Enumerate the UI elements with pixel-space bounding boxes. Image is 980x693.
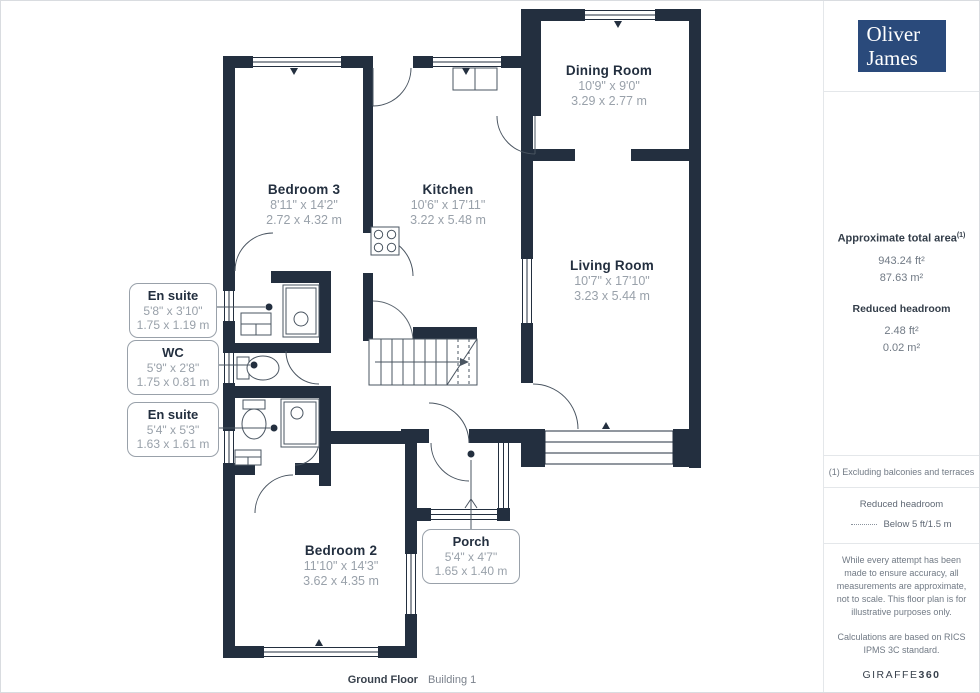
callout-dim-imperial: 5'8" x 3'10"	[134, 304, 212, 318]
callout-name: Porch	[427, 534, 515, 550]
shower-fixture-ensuite2	[281, 399, 319, 447]
callout-name: En suite	[134, 288, 212, 304]
footnote-marker: (1)	[957, 232, 966, 239]
callout-dim-imperial: 5'4" x 5'3"	[132, 423, 214, 437]
sink-fixture-ensuite1	[241, 313, 271, 335]
plan-footer: Ground FloorBuilding 1	[1, 674, 823, 686]
hob-fixture	[371, 227, 399, 255]
logo-line1: Oliver	[867, 22, 946, 46]
reduced-headroom-m: 0.02 m²	[824, 340, 979, 357]
floorplan-page: Dining Room 10'9" x 9'0" 3.29 x 2.77 m K…	[0, 0, 980, 693]
callout-dim-metric: 1.75 x 1.19 m	[134, 318, 212, 332]
total-area-title: Approximate total area(1)	[824, 232, 979, 245]
total-area-m: 87.63 m²	[824, 270, 979, 287]
stairs	[369, 339, 477, 385]
reduced-headroom-ft: 2.48 ft²	[824, 323, 979, 340]
callout-wc: WC 5'9" x 2'8" 1.75 x 0.81 m	[127, 340, 219, 395]
floorplan-canvas: Dining Room 10'9" x 9'0" 3.29 x 2.77 m K…	[1, 1, 823, 692]
shower-fixture-ensuite1	[283, 285, 319, 337]
disclaimer-text: While every attempt has been made to ens…	[836, 554, 967, 619]
logo-line2: James	[867, 46, 946, 70]
sink-fixture-ensuite2	[235, 450, 261, 465]
area-footnote: (1) Excluding balconies and terraces	[824, 455, 979, 487]
callout-dim-metric: 1.75 x 0.81 m	[132, 375, 214, 389]
oliver-james-logo: Oliver James	[858, 20, 946, 72]
logo-section: Oliver James	[824, 1, 979, 91]
callout-dim-imperial: 5'9" x 2'8"	[132, 361, 214, 375]
standards-text: Calculations are based on RICS IPMS 3C s…	[836, 631, 967, 657]
total-area-ft: 943.24 ft²	[824, 253, 979, 270]
callout-ensuite1: En suite 5'8" x 3'10" 1.75 x 1.19 m	[129, 283, 217, 338]
callout-dim-imperial: 5'4" x 4'7"	[427, 550, 515, 564]
legend-value: Below 5 ft/1.5 m	[883, 519, 951, 530]
disclaimer-section: While every attempt has been made to ens…	[824, 543, 979, 692]
giraffe360-logo: GIRAFFE360	[836, 669, 967, 682]
building-name: Building 1	[428, 674, 476, 686]
callout-name: En suite	[132, 407, 214, 423]
legend-section: Reduced headroom Below 5 ft/1.5 m	[824, 487, 979, 543]
callout-dim-metric: 1.63 x 1.61 m	[132, 437, 214, 451]
toilet-fixture-wc	[237, 356, 279, 380]
callout-dim-metric: 1.65 x 1.40 m	[427, 564, 515, 578]
callout-porch: Porch 5'4" x 4'7" 1.65 x 1.40 m	[422, 529, 520, 584]
toilet-fixture-ensuite2	[242, 400, 266, 439]
reduced-headroom-title: Reduced headroom	[824, 303, 979, 315]
floor-name: Ground Floor	[348, 674, 418, 686]
floorplan-svg	[1, 1, 823, 692]
area-section: Approximate total area(1) 943.24 ft² 87.…	[824, 91, 979, 455]
info-sidebar: Oliver James Approximate total area(1) 9…	[823, 1, 979, 692]
dotted-line-icon	[851, 524, 877, 525]
callout-ensuite2: En suite 5'4" x 5'3" 1.63 x 1.61 m	[127, 402, 219, 457]
callout-name: WC	[132, 345, 214, 361]
kitchen-sink-fixture	[453, 68, 497, 90]
legend-title: Reduced headroom	[824, 499, 979, 510]
